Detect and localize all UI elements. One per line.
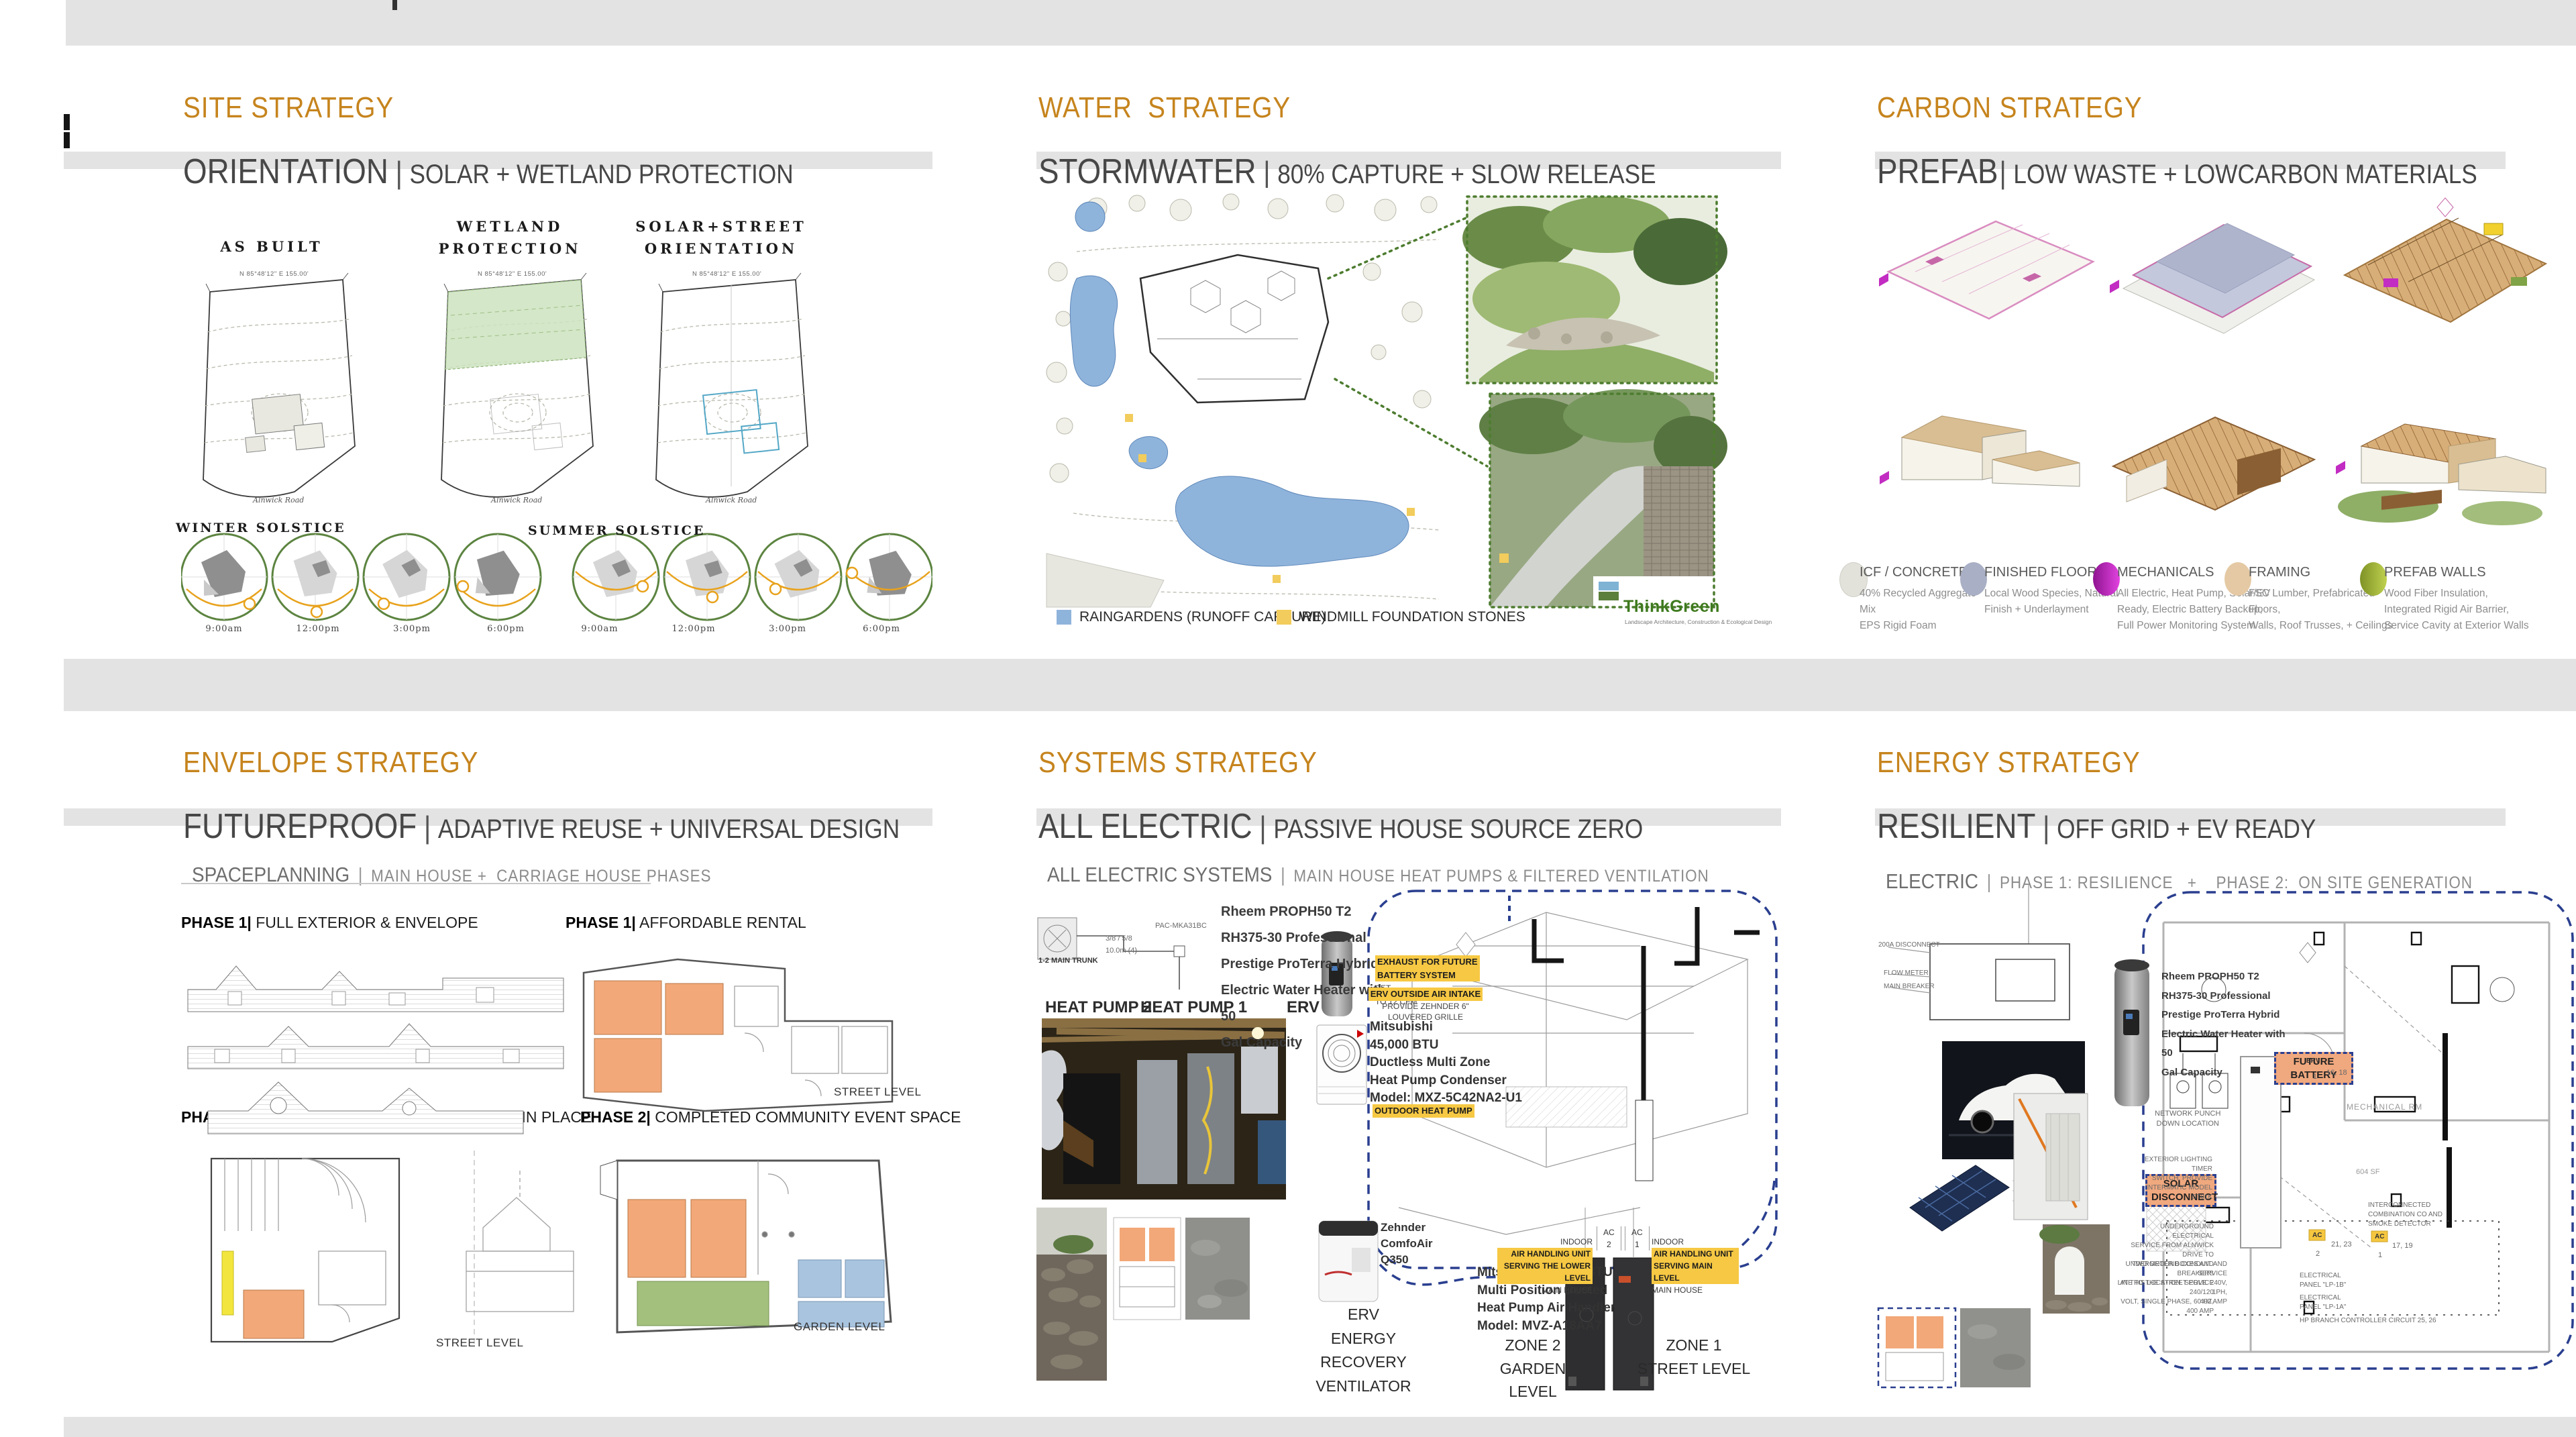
intake-highlight: ERV OUTSIDE AIR INTAKE (1368, 988, 1483, 1001)
erv-plan-tag: ERV (2306, 1057, 2320, 1066)
erv-circuits: 16, 18 (2326, 1068, 2347, 1078)
flow-meter-label: FLOW METER (1884, 969, 1929, 978)
elevation-drawings (188, 966, 563, 1134)
mechanical-room-label: MECHANICAL RM (2347, 1102, 2422, 1113)
zone2-label: ZONE 2 GARDEN LEVEL (1476, 1334, 1590, 1403)
ac1-number: 1 (2378, 1250, 2382, 1261)
one-line-diagram (1888, 884, 2070, 1020)
ac2-tag: AC 2 (1597, 1226, 1621, 1250)
mid-band (64, 659, 2576, 711)
site-plan-wetland: N 85°48'12" E 155.00' Alnwick Road (441, 270, 593, 504)
room-area-label: 604 SF (2356, 1167, 2379, 1177)
community-floor-plan (600, 1161, 891, 1332)
energy-graphics (1875, 832, 2576, 1416)
plan-thumbnail (1114, 1218, 1181, 1320)
road-label: Alnwick Road (705, 496, 757, 504)
time-label: 9:00am (553, 624, 647, 634)
zone1-label: ZONE 1 STREET LEVEL (1637, 1334, 1751, 1380)
note-pre: INDOOR (1652, 1237, 1684, 1246)
panel-lp1a-label: ELECTRICAL PANEL "LP-1A" (2300, 1293, 2346, 1312)
raingarden-rendering-inset (1462, 197, 1727, 383)
edge-mark (64, 132, 70, 148)
dimension-text: N 85°48'12" E 155.00' (478, 270, 547, 278)
water-heater-photo (2114, 959, 2149, 1106)
bottom-band (64, 1417, 2576, 1437)
note-highlight: AIR HANDLING UNIT SERVING THE LOWER LEVE… (1497, 1248, 1593, 1284)
time-label: 12:00pm (647, 624, 741, 634)
elevator-highlight (222, 1251, 233, 1315)
axon-floor-framing (2113, 417, 2314, 510)
ac1-plan-tag: AC (2375, 1232, 2384, 1242)
garden-level-label: GARDEN LEVEL (794, 1320, 885, 1334)
top-band (66, 0, 2576, 46)
ac1-tag: AC 1 (1625, 1226, 1650, 1250)
indoor-unit-2-note: INDOOR AIR HANDLING UNIT SERVING THE LOW… (1497, 1224, 1593, 1296)
outdoor-unit-note: OUTDOOR HEAT PUMP (1373, 1104, 1474, 1118)
panel-title: SYSTEMS STRATEGY (1038, 746, 1643, 780)
network-note: NETWORK PUNCH DOWN LOCATION (2155, 1109, 2220, 1130)
plan-label-solar-street: SOLAR+STREET ORIENTATION (631, 216, 812, 260)
panel-title: ENERGY STRATEGY (1877, 746, 2316, 780)
legend-title: PREFAB WALLS (2384, 565, 2545, 580)
panel-title: WATER STRATEGY (1038, 91, 1656, 125)
condenser-specs: Mitsubishi 45,000 BTU Ductless Multi Zon… (1370, 1018, 1524, 1108)
axon-foundation (1879, 221, 2093, 319)
panel-title: ENVELOPE STRATEGY (183, 746, 900, 780)
rheem-specs: Rheem PROPH50 T2 RH375-30 Professional P… (1221, 899, 1389, 1056)
street-level-label: STREET LEVEL (436, 1336, 523, 1350)
winter-solstice-diagrams (181, 534, 541, 620)
street-level-label: STREET LEVEL (834, 1085, 921, 1099)
legend-desc: FSC Lumber, Prefabricated Floors, Walls,… (2249, 586, 2406, 634)
thinkgreen-logo: ThinkGreen (1623, 597, 1720, 617)
trunk-label: 1-2 MAIN TRUNK (1038, 956, 1098, 966)
time-label: 6:00pm (459, 624, 553, 634)
axon-roof-framing (2345, 198, 2546, 322)
rheem-specs: Rheem PROPH50 T2 RH375-30 Professional P… (2161, 967, 2289, 1082)
summer-solstice-label: SUMMER SOLSTICE (528, 523, 705, 538)
site-plan-solar-street: N 85°48'12" E 155.00' Alnwick Road (656, 270, 808, 504)
axon-walls (1880, 416, 2080, 486)
wall-section-card (2014, 1094, 2088, 1220)
concrete-photo-thumbnail (1185, 1218, 1250, 1320)
panel-title: CARBON STRATEGY (1877, 91, 2477, 125)
time-label: 3:00pm (741, 624, 835, 634)
note-highlight: AIR HANDLING UNIT SERVING MAIN LEVEL (1652, 1248, 1739, 1284)
lighting-timer-note: EXTERIOR LIGHTING TIMER SWITCH, PROVIDE … (2132, 1155, 2212, 1202)
legend-prefab-walls: PREFAB WALLS Wood Fiber Insulation, Inte… (2384, 565, 2545, 634)
plan-label-wetland: WETLAND PROTECTION (423, 216, 597, 260)
erv-caption: ERV ENERGY RECOVERY VENTILATOR (1315, 1303, 1412, 1399)
pipe-size-label: 3/8 / 5/8 (1106, 934, 1132, 944)
summer-solstice-diagrams (573, 534, 932, 620)
legend-dot-prefab-walls (2360, 562, 2387, 596)
axon-full-house (2336, 424, 2546, 525)
breaker-label: MAIN BREAKER (1884, 982, 1935, 992)
underground-conduit-note: UNDERGROUND CONDUIT AND SERVICE LINE TO … (2116, 1260, 2227, 1307)
ac1-circuits: 17, 19 (2392, 1241, 2413, 1251)
legend-label: WINDMILL FOUNDATION STONES (1299, 609, 1525, 625)
heat-pump-2-label: HEAT PUMP 2 (1045, 998, 1152, 1017)
ac2-plan-tag: AC (2312, 1231, 2322, 1240)
site-plan-as-built: N 85°48'12" E 155.00' Alnwick Road (203, 270, 355, 504)
legend-desc: Wood Fiber Insulation, Integrated Rigid … (2384, 586, 2545, 634)
concrete-photo-thumbnail (1960, 1308, 2031, 1387)
crop-artifact-tick (392, 0, 397, 10)
co-smoke-note: INTERCONNECTED COMBINATION CO AND SMOKE … (2368, 1201, 2443, 1229)
outdoor-highlight: OUTDOOR HEAT PUMP (1373, 1104, 1474, 1118)
time-label: 12:00pm (271, 624, 365, 634)
raingarden-photo-inset (1479, 389, 1727, 607)
condenser-model-label: PAC-MKA31BC (1155, 921, 1207, 931)
disconnect-label: 200A DISCONNECT (1878, 941, 1940, 950)
heat-pump-1-label: HEAT PUMP 1 (1140, 998, 1247, 1017)
road-label: Alnwick Road (252, 496, 304, 504)
dimension-text: N 85°48'12" E 155.00' (692, 270, 761, 278)
legend-swatch-yellow (1277, 610, 1291, 625)
plan-label-as-built: AS BUILT (188, 236, 356, 258)
stone-wall-photo (1036, 1208, 1107, 1381)
presentation-board: SITE STRATEGY ORIENTATION|SOLAR + WETLAN… (0, 0, 2576, 1437)
note-post: MAIN HOUSE (1652, 1285, 1703, 1295)
solstice-times: 9:00am12:00pm3:00pm6:00pm9:00am12:00pm3:… (177, 624, 928, 634)
time-label: 3:00pm (365, 624, 459, 634)
plan-thumbnail (1878, 1308, 1955, 1387)
thinkgreen-tagline: Landscape Architecture, Construction & E… (1625, 619, 1772, 625)
stormwater-plan-graphic (1036, 178, 1781, 644)
edge-mark (64, 114, 70, 130)
erv-number: 1 (2313, 1072, 2317, 1082)
legend-swatch-blue (1057, 610, 1071, 625)
erv-label: ERV (1287, 998, 1320, 1017)
note-pre: INDOOR (1560, 1237, 1593, 1246)
ac2-circuits: 21, 23 (2331, 1240, 2352, 1250)
prefab-axon-graphics (1875, 174, 2576, 560)
battery-cabinet (2241, 1057, 2281, 1248)
panel-title: SITE STRATEGY (183, 91, 794, 125)
legend-dot-framing (2224, 562, 2251, 596)
time-label: 6:00pm (835, 624, 928, 634)
axon-floors (2110, 223, 2314, 333)
time-label: 9:00am (177, 624, 271, 634)
stone-arch-photo (2039, 1224, 2110, 1314)
indoor-unit-1-note: INDOOR AIR HANDLING UNIT SERVING MAIN LE… (1652, 1224, 1739, 1296)
note-post: MAIN HOUSE (1542, 1285, 1593, 1295)
pipe-length-label: 10.0m (4) (1106, 946, 1137, 956)
dimension-text: N 85°48'12" E 155.00' (239, 270, 309, 278)
zehnder-label: Zehnder ComfoAir Q350 (1381, 1220, 1432, 1267)
panel-lp1b-label: ELECTRICAL PANEL "LP-1B" (2300, 1271, 2346, 1290)
road-label: Alnwick Road (490, 496, 542, 504)
ac2-number: 2 (2316, 1249, 2320, 1259)
legend-windmill-stones: WINDMILL FOUNDATION STONES (1277, 609, 1525, 625)
legend-dot-floors (1960, 562, 1987, 596)
erv-unit-photo (1319, 1221, 1378, 1301)
winter-solstice-label: WINTER SOLSTICE (176, 521, 346, 535)
exhaust-highlight: EXHAUST FOR FUTURE BATTERY SYSTEM (1375, 955, 1480, 981)
legend-dot-mechanicals (2093, 562, 2120, 596)
renovation-floor-plan (211, 1151, 574, 1345)
hp-branch-label: HP BRANCH CONTROLLER CIRCUIT 25, 26 (2300, 1316, 2436, 1326)
